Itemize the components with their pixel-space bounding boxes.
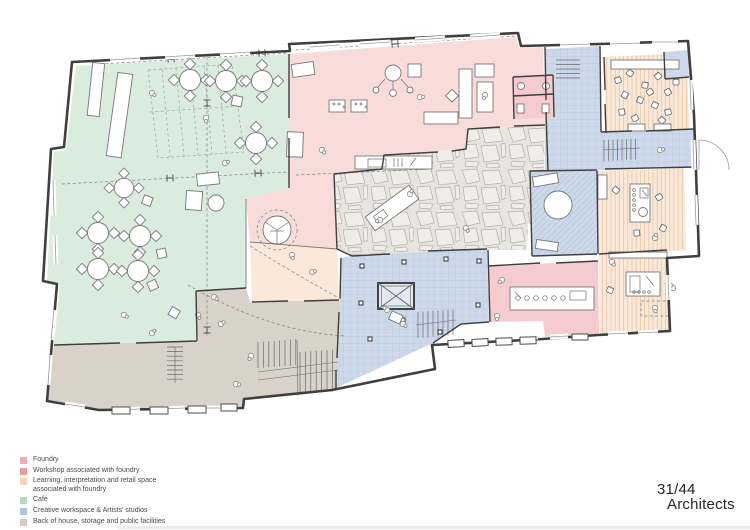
workshop-furniture — [510, 287, 594, 310]
legend-label: Learning, interpretation and retail spac… — [33, 477, 156, 494]
kiln — [263, 216, 291, 244]
legend-item-studios: Creative workspace & Artists' studios — [20, 507, 165, 516]
legend-swatch-studios — [20, 508, 27, 515]
legend-item-cafe: Café — [20, 496, 165, 505]
legend-label: Café — [33, 496, 48, 505]
legend-item-workshop: Workshop associated with foundry — [20, 467, 165, 476]
credit: 31/44 Architects — [657, 483, 735, 512]
legend-item-learning: Learning, interpretation and retail spac… — [20, 477, 165, 494]
stairwell-opening — [378, 283, 414, 309]
legend-swatch-workshop — [20, 468, 27, 475]
legend-label: Creative workspace & Artists' studios — [33, 507, 148, 516]
legend-swatch-foundry — [20, 457, 27, 464]
legend-swatch-cafe — [20, 497, 27, 504]
legend: Foundry Workshop associated with foundry… — [20, 456, 165, 528]
drawing-sheet: Foundry Workshop associated with foundry… — [0, 0, 750, 530]
legend-label: Foundry — [33, 456, 59, 465]
zone-learning-centre — [250, 242, 339, 302]
legend-item-boh: Back of house, storage and public facili… — [20, 518, 165, 527]
legend-label: Back of house, storage and public facili… — [33, 518, 165, 527]
credit-name: Architects — [667, 498, 735, 513]
legend-label: Workshop associated with foundry — [33, 467, 139, 476]
legend-item-foundry: Foundry — [20, 456, 165, 465]
legend-swatch-boh — [20, 519, 27, 526]
page-edge — [118, 526, 750, 529]
floor-plan — [0, 0, 750, 530]
legend-swatch-learning — [20, 478, 27, 485]
door-swing — [699, 140, 729, 170]
